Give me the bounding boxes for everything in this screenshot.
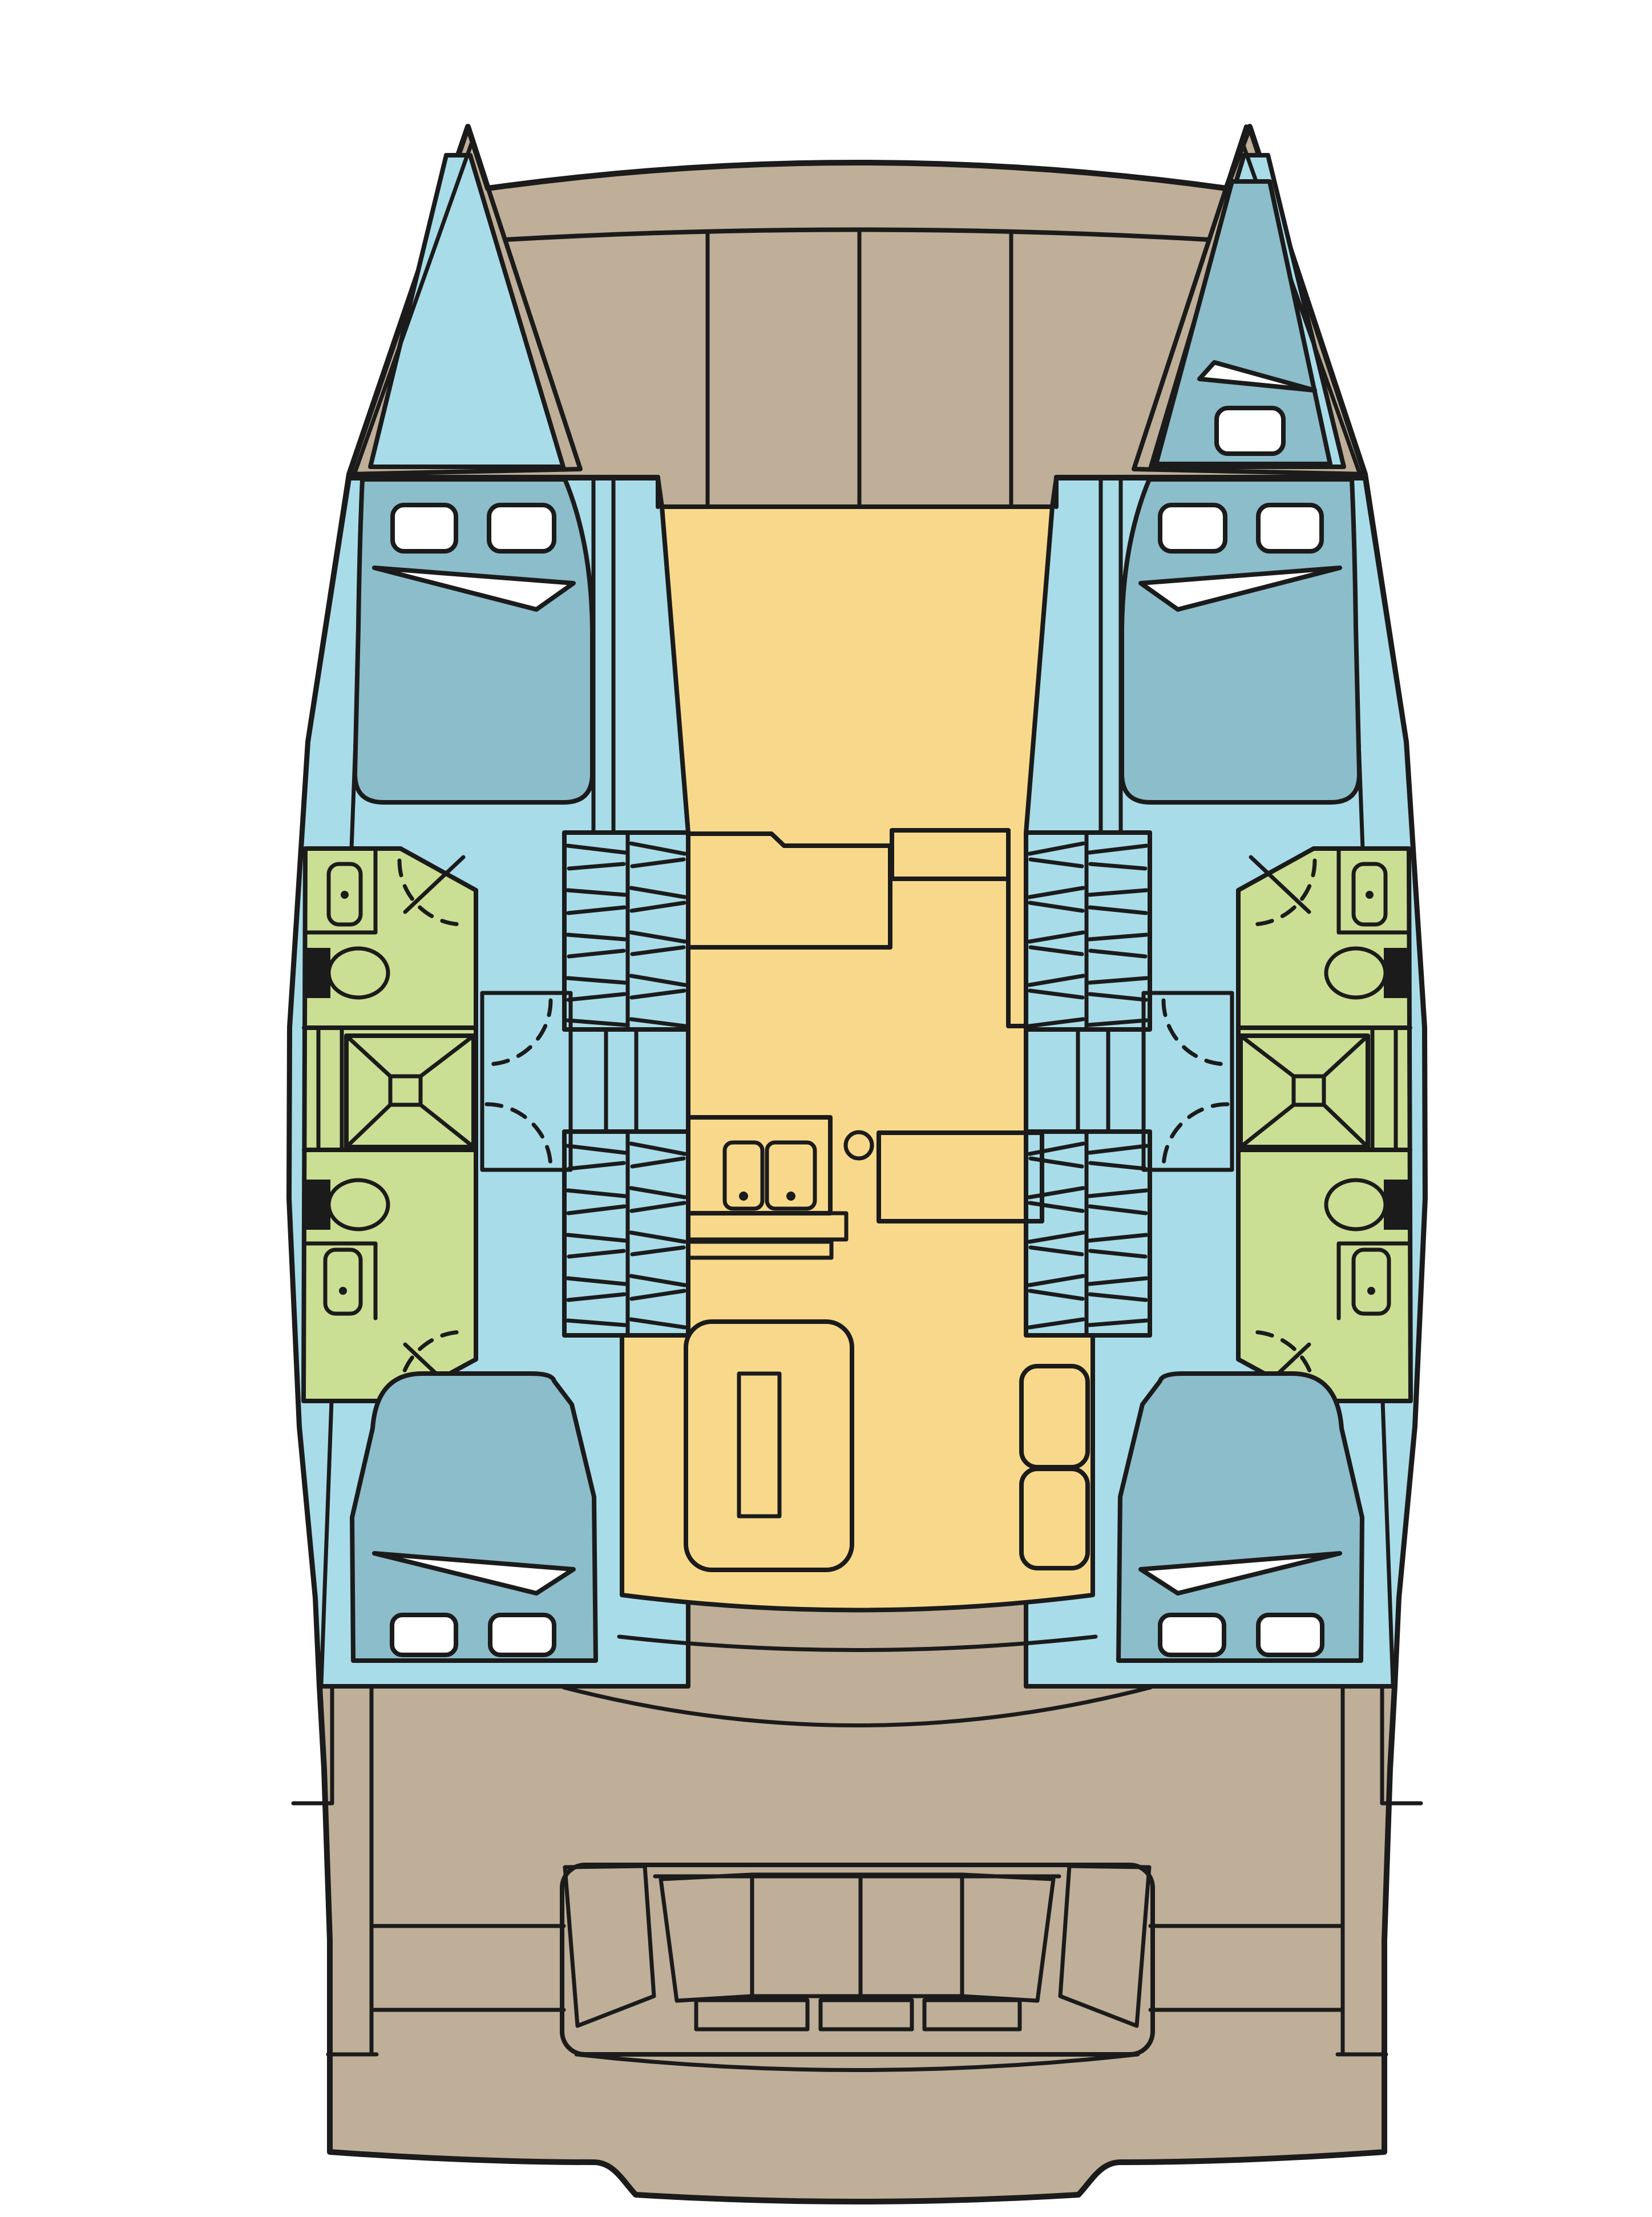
forepeak-hatch — [1217, 408, 1283, 454]
forward-cabin-hatch-1 — [393, 505, 456, 551]
catamaran-floor-plan — [0, 0, 1652, 2217]
aft-basin-faucet-dot — [340, 1287, 346, 1294]
forward-cabin-hatch-2 — [489, 505, 554, 551]
aft-cabin-bed — [352, 1374, 596, 1661]
floor-plan-canvas — [0, 0, 1652, 2217]
fwd-toilet-tank — [306, 948, 330, 998]
fwd-basin-faucet-dot — [341, 891, 348, 898]
galley-sink-2-drain — [787, 1192, 795, 1200]
aft-cabin-hatch-1 — [392, 1615, 456, 1655]
aft-toilet-tank — [306, 1180, 330, 1229]
salon — [622, 507, 1093, 1610]
galley-sink-1-drain — [740, 1192, 748, 1200]
aft-cabin-hatch-2 — [490, 1615, 554, 1655]
